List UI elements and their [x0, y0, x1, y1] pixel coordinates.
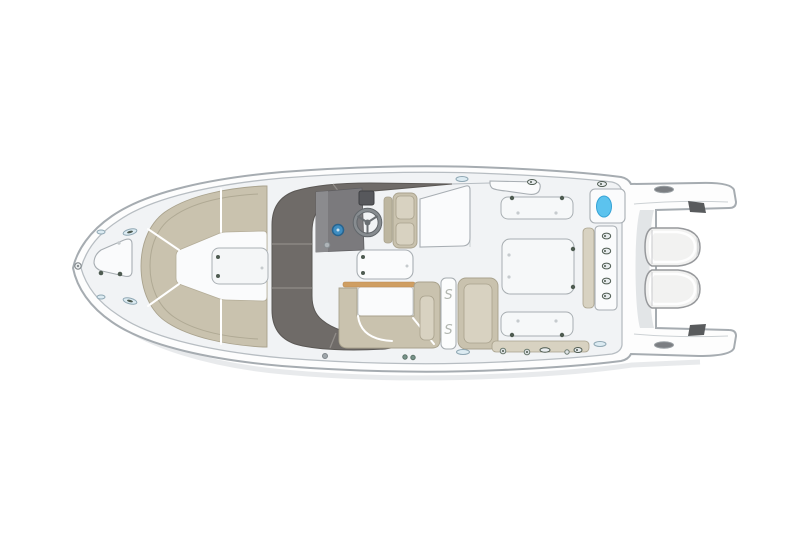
cockpit-table: [357, 250, 413, 279]
walkway-strip: S S: [441, 278, 456, 349]
transom-seat-strip: [583, 228, 594, 308]
helm-seat-cushion: [396, 223, 414, 245]
locker-fitting-dot: [117, 241, 120, 244]
livewell-icon: [597, 196, 612, 217]
cleat-icon: [594, 342, 606, 347]
bench-cushion: [464, 284, 492, 343]
platform-vent-icon: [655, 342, 674, 348]
boat-deck-plan: S S: [0, 0, 800, 534]
table-top: [357, 250, 413, 279]
deck-hatch-center: [502, 239, 574, 294]
locker-latch-dot: [99, 271, 104, 276]
bow-filler-table: [212, 248, 268, 284]
latch-glyph: S: [444, 323, 452, 338]
platform-vent-icon: [655, 186, 674, 192]
cleat-icon: [457, 350, 470, 355]
outboard-engine-1: [645, 228, 700, 266]
bow-eye-center: [77, 265, 79, 267]
latch-fitting: [598, 182, 607, 187]
lounge-footwell: [358, 287, 413, 316]
deck-hatch-forward: [501, 197, 573, 219]
console-fitting-dot: [324, 242, 330, 248]
helm-seat-cushion: [396, 196, 414, 219]
aft-bench-seat: [458, 278, 498, 349]
deck-fitting-dot: [403, 355, 407, 359]
table-mount-dot: [361, 255, 365, 259]
aft-deck-hatches: [501, 196, 575, 337]
deck-hatch-aft: [501, 312, 573, 336]
outboard-engine-2: [645, 270, 700, 308]
latch-glyph: S: [444, 288, 452, 303]
locker-latch-dot: [118, 272, 123, 277]
deck-fitting-dot: [565, 350, 569, 354]
lounge-backrest-panel: [420, 296, 434, 340]
cup-holder-dot: [261, 267, 264, 270]
helm-display-screen: [359, 191, 374, 205]
latch-fitting: [500, 348, 506, 354]
table-mount-dot: [361, 271, 365, 275]
lounge-wood-trim: [343, 282, 415, 287]
deck-fitting-dot: [323, 354, 328, 359]
boat-deck-plan-canvas: S S: [0, 0, 800, 534]
latch-fitting: [574, 348, 582, 353]
engine-bracket: [688, 324, 706, 336]
table-mount-dot: [216, 255, 220, 259]
latch-fitting: [524, 349, 530, 355]
port-lounge: [339, 282, 440, 348]
helm-seat-bolster: [384, 197, 392, 243]
cleat-icon: [456, 177, 468, 182]
compass-center-dot: [337, 229, 340, 232]
deck-fitting-dot: [411, 355, 415, 359]
cup-holder-dot: [406, 265, 409, 268]
table-mount-dot: [216, 274, 220, 278]
latch-fitting: [528, 180, 537, 185]
latch-fitting: [540, 348, 550, 352]
